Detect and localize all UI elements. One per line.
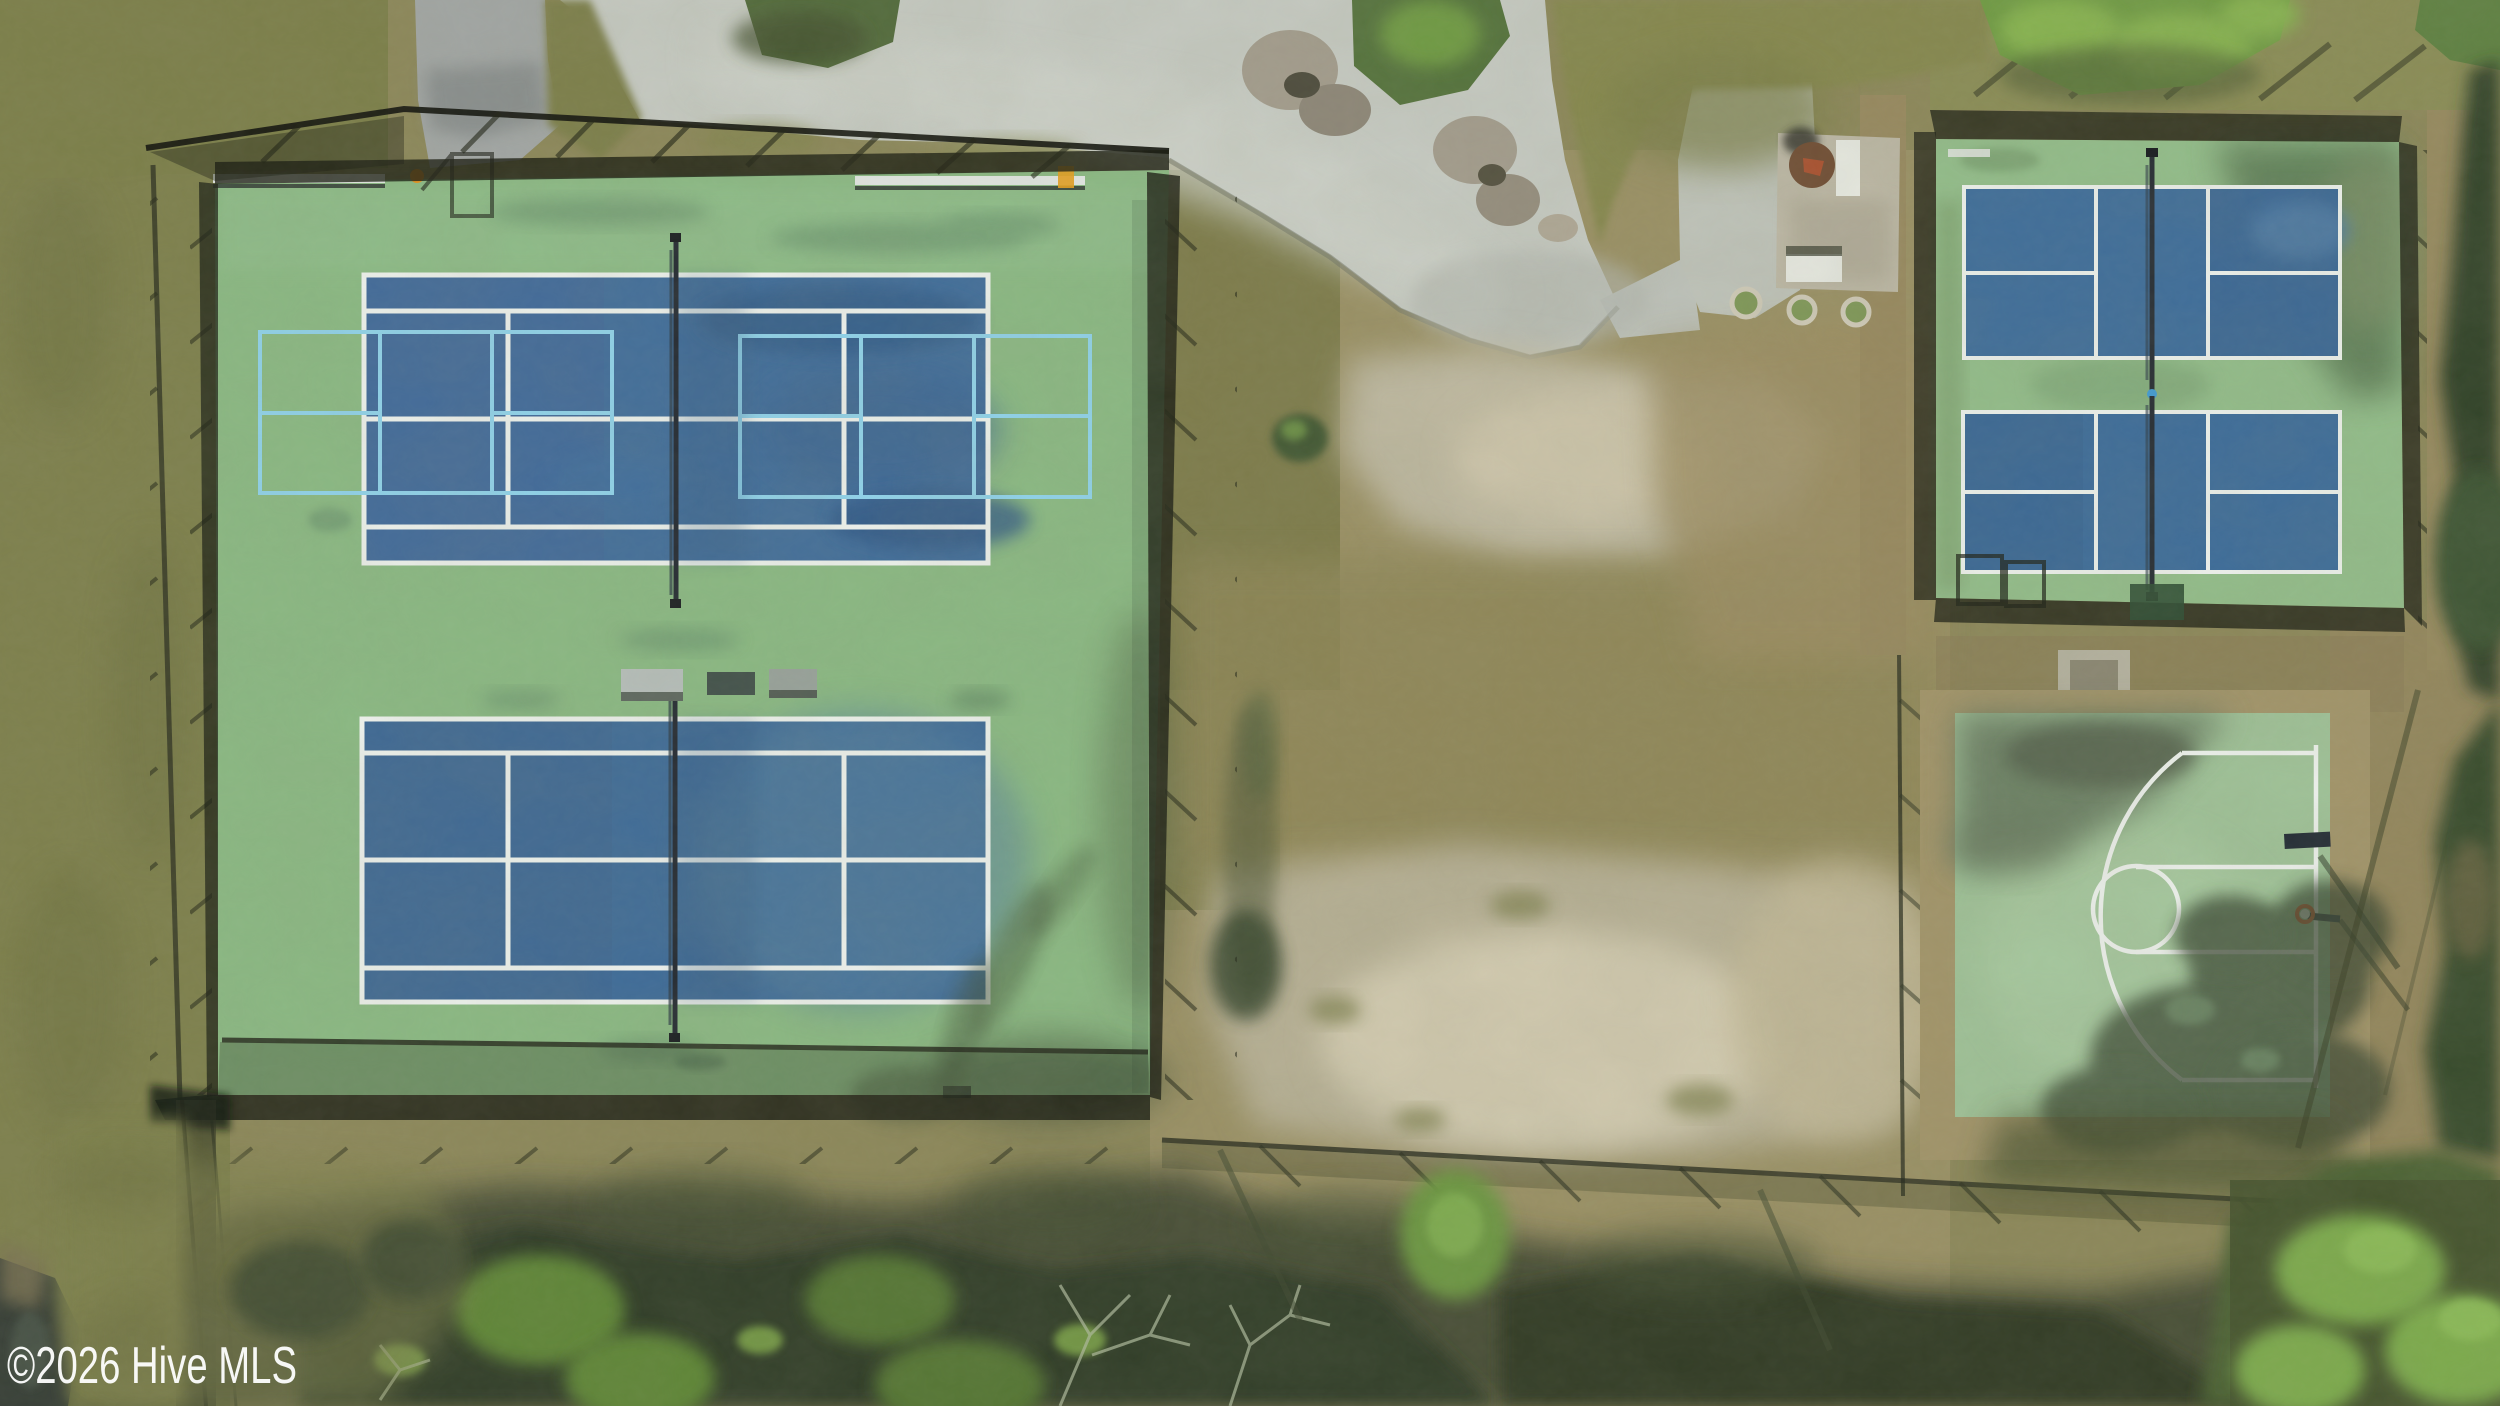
svg-text:©2026 Hive MLS: ©2026 Hive MLS	[7, 1337, 297, 1395]
